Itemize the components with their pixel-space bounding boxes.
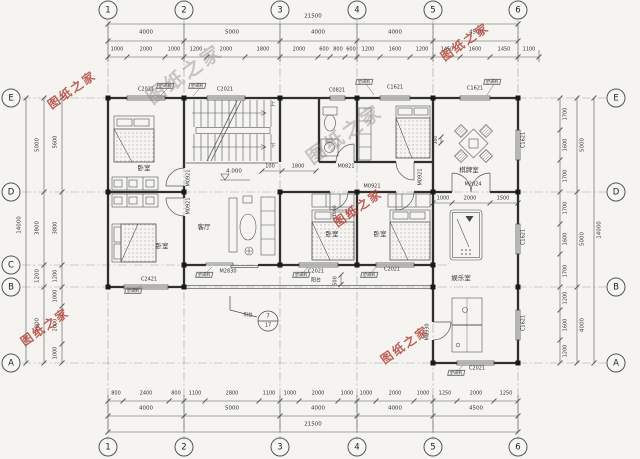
dimension-text: 2000 — [470, 392, 483, 397]
grid-bubble-left-A: A — [2, 354, 21, 373]
door-label: M2830 — [219, 270, 236, 275]
dimension-text: 4000 — [388, 406, 402, 412]
beds — [112, 106, 430, 262]
window-label: C2021 — [469, 367, 485, 372]
sofa-set — [229, 196, 275, 255]
dimension-text: 2000 — [389, 392, 402, 397]
dimension-text: 1000 — [54, 290, 59, 303]
dimension-text: 3800 — [54, 222, 59, 235]
dimension-text: 5000 — [225, 406, 239, 412]
stair-direction-label: 下 — [270, 145, 275, 150]
grid-bubble-left-B: B — [2, 278, 21, 297]
pingpong-table — [452, 298, 482, 352]
window-label: C2421 — [141, 278, 157, 283]
room-label: 卧室 — [156, 243, 169, 250]
dimension-text: 1600 — [469, 48, 482, 53]
dimension-text: 1000 — [341, 392, 354, 397]
bed-middle-right — [390, 210, 430, 260]
grid-bubble-top-5: 5 — [424, 1, 443, 20]
dimension-text: 800 — [171, 392, 181, 397]
mahjong-table — [455, 125, 493, 163]
grid-bubble-bottom-6: 6 — [509, 438, 528, 457]
ac-unit-tag: 空调机 — [292, 272, 310, 278]
ac-unit-tag: 空调机 — [195, 272, 213, 278]
dimension-text: 1000 — [417, 392, 430, 397]
dimension-text: 4000 — [311, 406, 325, 412]
dimension-text: 1200 — [35, 269, 41, 283]
dimension-text: 4000 — [388, 30, 402, 36]
dimension-text: 4500 — [469, 406, 483, 412]
grid-bubble-left-C: C — [2, 256, 21, 275]
dimension-text: 1000 — [111, 48, 124, 53]
window-label: C2021 — [384, 268, 400, 273]
dimension-text: 1700 — [564, 108, 569, 121]
grid-bubble-top-3: 3 — [271, 1, 290, 20]
level-marker — [220, 174, 250, 180]
level-label: 4.000 — [226, 169, 242, 175]
dimension-text: 21500 — [304, 14, 322, 20]
dimension-text: 600 — [346, 48, 356, 53]
grid-bubble-left-D: D — [2, 183, 21, 202]
dimension-text: 1600 — [564, 233, 569, 246]
grid-bubble-top-4: 4 — [348, 1, 367, 20]
dimension-text: 1100 — [263, 392, 276, 397]
dimension-lines — [24, 22, 597, 435]
room-label: 卧室 — [326, 231, 339, 238]
dimension-text: 1500 — [497, 197, 510, 202]
window-label: C2021 — [308, 270, 324, 275]
grid-bubble-top-2: 2 — [175, 1, 194, 20]
room-label: 卧室 — [138, 165, 151, 172]
dimension-text: 800 — [111, 392, 121, 397]
dimension-text: 4000 — [139, 30, 153, 36]
window-label: C1621 — [387, 86, 403, 91]
window-label: C1621 — [522, 132, 527, 148]
grid-bubble-bottom-5: 5 — [424, 438, 443, 457]
dimension-text: 1600 — [564, 139, 569, 152]
dimension-text: 4000 — [311, 30, 325, 36]
room-label: 娱乐室 — [451, 275, 471, 282]
ac-unit-tag: 空调机 — [483, 79, 501, 85]
door-label: M0921 — [187, 169, 192, 186]
stair-direction-label: 上 — [270, 103, 275, 108]
room-label: 阳台 — [311, 279, 321, 284]
ac-unit-tag: 空调机 — [447, 370, 465, 376]
dimension-text: 5000 — [580, 138, 586, 152]
dimension-text: 5600 — [54, 136, 59, 149]
dimension-text: 1700 — [564, 265, 569, 278]
dimension-text: 21500 — [304, 422, 322, 428]
staircase — [186, 100, 278, 163]
grid-bubble-right-A: A — [607, 354, 626, 373]
dimension-text: 1800 — [292, 165, 305, 170]
dimension-text: 2000 — [312, 392, 325, 397]
dimension-text: 1250 — [439, 392, 452, 397]
dimension-text: 3800 — [35, 221, 41, 235]
dimension-text: 1000 — [284, 392, 297, 397]
dimension-text: 2800 — [226, 392, 239, 397]
grid-bubble-bottom-1: 1 — [99, 438, 118, 457]
window-label: C0821 — [329, 89, 345, 94]
door-label: M0821 — [337, 165, 354, 170]
detail-marker-label: 7 — [266, 314, 270, 320]
ac-unit-tag: 空调机 — [355, 79, 373, 85]
dimension-text: 1700 — [564, 202, 569, 215]
room-label: 卧室 — [374, 231, 387, 238]
bed-bottom-left — [112, 224, 156, 262]
dimension-text: 500 — [334, 276, 339, 286]
dimension-text: 1200 — [564, 292, 569, 305]
dimension-text: 5000 — [580, 232, 586, 246]
room-label: 客厅 — [198, 224, 211, 231]
dimension-text: 1000 — [360, 392, 373, 397]
ac-unit-tag: 空调机 — [360, 272, 378, 278]
grid-bubble-right-E: E — [607, 89, 626, 108]
dimension-text: 2000 — [293, 48, 306, 53]
window-label: C1621 — [522, 229, 527, 245]
dimension-text: 100 — [265, 165, 275, 170]
dimension-text: 4000 — [139, 406, 153, 412]
dimension-text: 5000 — [35, 138, 41, 152]
ac-unit-tag: 空调机 — [124, 288, 142, 294]
dimension-text: 1450 — [498, 48, 511, 53]
grid-bubble-left-E: E — [2, 89, 21, 108]
ac-unit-tag: 空调机 — [188, 83, 206, 89]
dimension-text: 1000 — [437, 197, 450, 202]
window-label: C1621 — [522, 315, 527, 331]
door-label: M2024 — [464, 183, 481, 188]
dimension-text: 1200 — [54, 270, 59, 283]
dimension-text: 300 — [435, 136, 440, 145]
dimension-text: 1800 — [257, 48, 270, 53]
dimension-text: 1250 — [500, 392, 513, 397]
dimension-text: 800 — [333, 48, 343, 53]
room-label: 阳台 — [244, 314, 253, 319]
billiard-table — [450, 210, 482, 260]
dimension-text: 1600 — [389, 48, 402, 53]
grid-bubble-top-6: 6 — [509, 1, 528, 20]
dimension-text: 1600 — [564, 319, 569, 332]
grid-bubble-right-B: B — [607, 278, 626, 297]
dimension-text: 5000 — [225, 30, 239, 36]
dimension-text: 14000 — [597, 221, 603, 239]
grid-bubble-right-D: D — [607, 183, 626, 202]
detail-marker-label: 17 — [265, 324, 271, 329]
dimension-text: 1700 — [564, 170, 569, 183]
dimension-text: 2000 — [464, 197, 477, 202]
dimension-text: 1000 — [168, 48, 181, 53]
dimension-text: 1000 — [54, 347, 59, 360]
dimension-text: 2400 — [140, 392, 153, 397]
grid-bubble-top-1: 1 — [99, 1, 118, 20]
dimension-text: 4000 — [580, 318, 586, 332]
room-label: 棋牌室 — [459, 167, 479, 174]
bed-top-left — [114, 116, 154, 162]
door-label: M0921 — [419, 168, 424, 185]
dimension-text: 2000 — [140, 48, 153, 53]
grid-bubble-bottom-3: 3 — [271, 438, 290, 457]
dimension-text: 1100 — [523, 48, 536, 53]
dimension-text: 1100 — [189, 392, 202, 397]
dimension-text: 14000 — [17, 216, 23, 234]
dimension-text: 1200 — [564, 345, 569, 358]
dimension-text: 1200 — [416, 48, 429, 53]
grid-bubble-bottom-2: 2 — [175, 438, 194, 457]
dimension-text: 1200 — [362, 48, 375, 53]
window-label: C2021 — [217, 88, 233, 93]
dimension-text: 600 — [319, 48, 329, 53]
window-label: C1621 — [467, 87, 483, 92]
grid-bubble-bottom-4: 4 — [348, 438, 367, 457]
door-label: M0921 — [187, 197, 192, 214]
floor-plan-sheet: 123456123456EDCBAEDBA2150040005000400040… — [0, 0, 640, 459]
bed-top-right — [396, 106, 430, 158]
